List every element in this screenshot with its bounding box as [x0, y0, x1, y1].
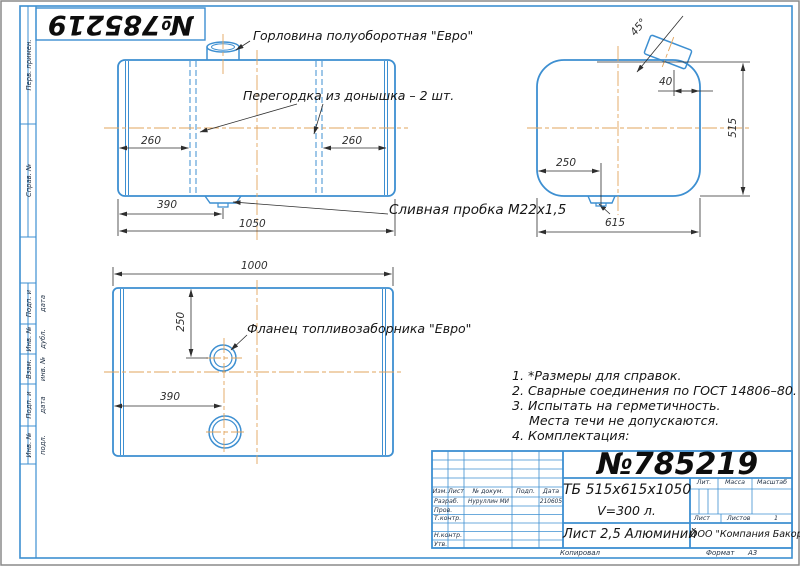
- dim-bottom-flange-y: 250: [176, 304, 188, 340]
- title-volume: V=300 л.: [563, 504, 690, 518]
- margin-label-inv-podl: Инв. № подл.: [22, 426, 36, 464]
- title-material: Лист 2,5 Алюминий: [563, 528, 690, 542]
- side-dim-lines: [537, 16, 750, 237]
- flange-callout: Фланец топливозаборника "Евро": [247, 322, 471, 336]
- side-drain-plug: [588, 196, 615, 203]
- bottom-view: [104, 267, 404, 464]
- note-1: 1. *Размеры для справок.: [512, 369, 681, 383]
- col-podp: Подп.: [512, 489, 539, 496]
- massa-label: Масса: [718, 480, 752, 487]
- title-company: ООО "Компания Бакор": [690, 530, 792, 540]
- listov-label: Листов: [727, 516, 751, 523]
- margin-label-podp-data-1: Подп. и дата: [22, 283, 36, 324]
- col-doc: № докум.: [464, 489, 512, 496]
- listov-value: 1: [774, 516, 778, 523]
- row-prov: Пров.: [434, 508, 452, 515]
- dim-side-height: 515: [728, 110, 740, 146]
- lit-label: Лит.: [690, 480, 718, 487]
- dim-front-length: 1050: [239, 219, 266, 231]
- dim-side-drain-x: 250: [556, 158, 576, 170]
- baffle-callout: Перегордка из донышка – 2 шт.: [243, 89, 454, 103]
- stamp-number: №785219: [36, 8, 205, 40]
- note-4: 4. Комплектация:: [512, 429, 629, 443]
- dim-side-neck-offset: 40: [659, 77, 672, 89]
- drain-callout: Сливная пробка М22х1,5: [389, 203, 566, 218]
- format-label: Формат: [706, 550, 734, 558]
- format-value: А3: [748, 550, 757, 558]
- row-razrab: Разраб.: [434, 499, 459, 506]
- note-3-cont: Места течи не допускаются.: [529, 414, 719, 428]
- side-centerlines: [527, 37, 752, 215]
- row-utv: Утв.: [434, 542, 447, 549]
- razrab-name: Нуруллин МИ: [465, 499, 512, 505]
- dim-side-width: 615: [605, 218, 625, 230]
- kopiroval-label: Копировал: [540, 550, 620, 558]
- margin-label-podp-data-2: Подп. и дата: [22, 384, 36, 426]
- margin-label-perv-primen: Перв. примен.: [22, 6, 36, 124]
- note-3: 3. Испытать на герметичность.: [512, 399, 721, 413]
- dim-bottom-flange-x: 390: [160, 392, 180, 404]
- row-nkontr: Н.контр.: [434, 533, 462, 540]
- row-tkontr: Т.контр.: [434, 516, 461, 523]
- margin-label-sprav-no: Справ. №: [22, 124, 36, 237]
- margin-label-inv-dubl: Инв. № дубл.: [22, 324, 36, 354]
- dim-front-baffle-right: 260: [342, 136, 362, 148]
- col-data: Дата: [539, 489, 563, 496]
- dim-front-baffle-left: 260: [141, 136, 161, 148]
- neck-callout: Горловина полуоборотная "Евро": [253, 29, 473, 43]
- title-doc-number: №785219: [563, 451, 792, 478]
- dim-front-drain-x: 390: [157, 200, 177, 212]
- drawing-sheet: №785219 Перв. примен. Справ. № Подп. и д…: [0, 0, 800, 566]
- dim-bottom-length: 1000: [241, 261, 268, 273]
- col-izm: Изм.: [432, 489, 448, 496]
- note-2: 2. Сварные соединения по ГОСТ 14806–80.: [512, 384, 797, 398]
- bottom-centerlines: [104, 280, 404, 464]
- list-label: Лист: [694, 516, 710, 523]
- side-neck: [644, 35, 692, 69]
- razrab-date: 210605: [539, 499, 563, 505]
- title-designation: ТБ 515х615х1050: [563, 483, 690, 498]
- masshtab-label: Масштаб: [752, 480, 792, 487]
- col-list: Лист: [448, 489, 464, 496]
- margin-label-vzam-inv: Взам. инв. №: [22, 354, 36, 384]
